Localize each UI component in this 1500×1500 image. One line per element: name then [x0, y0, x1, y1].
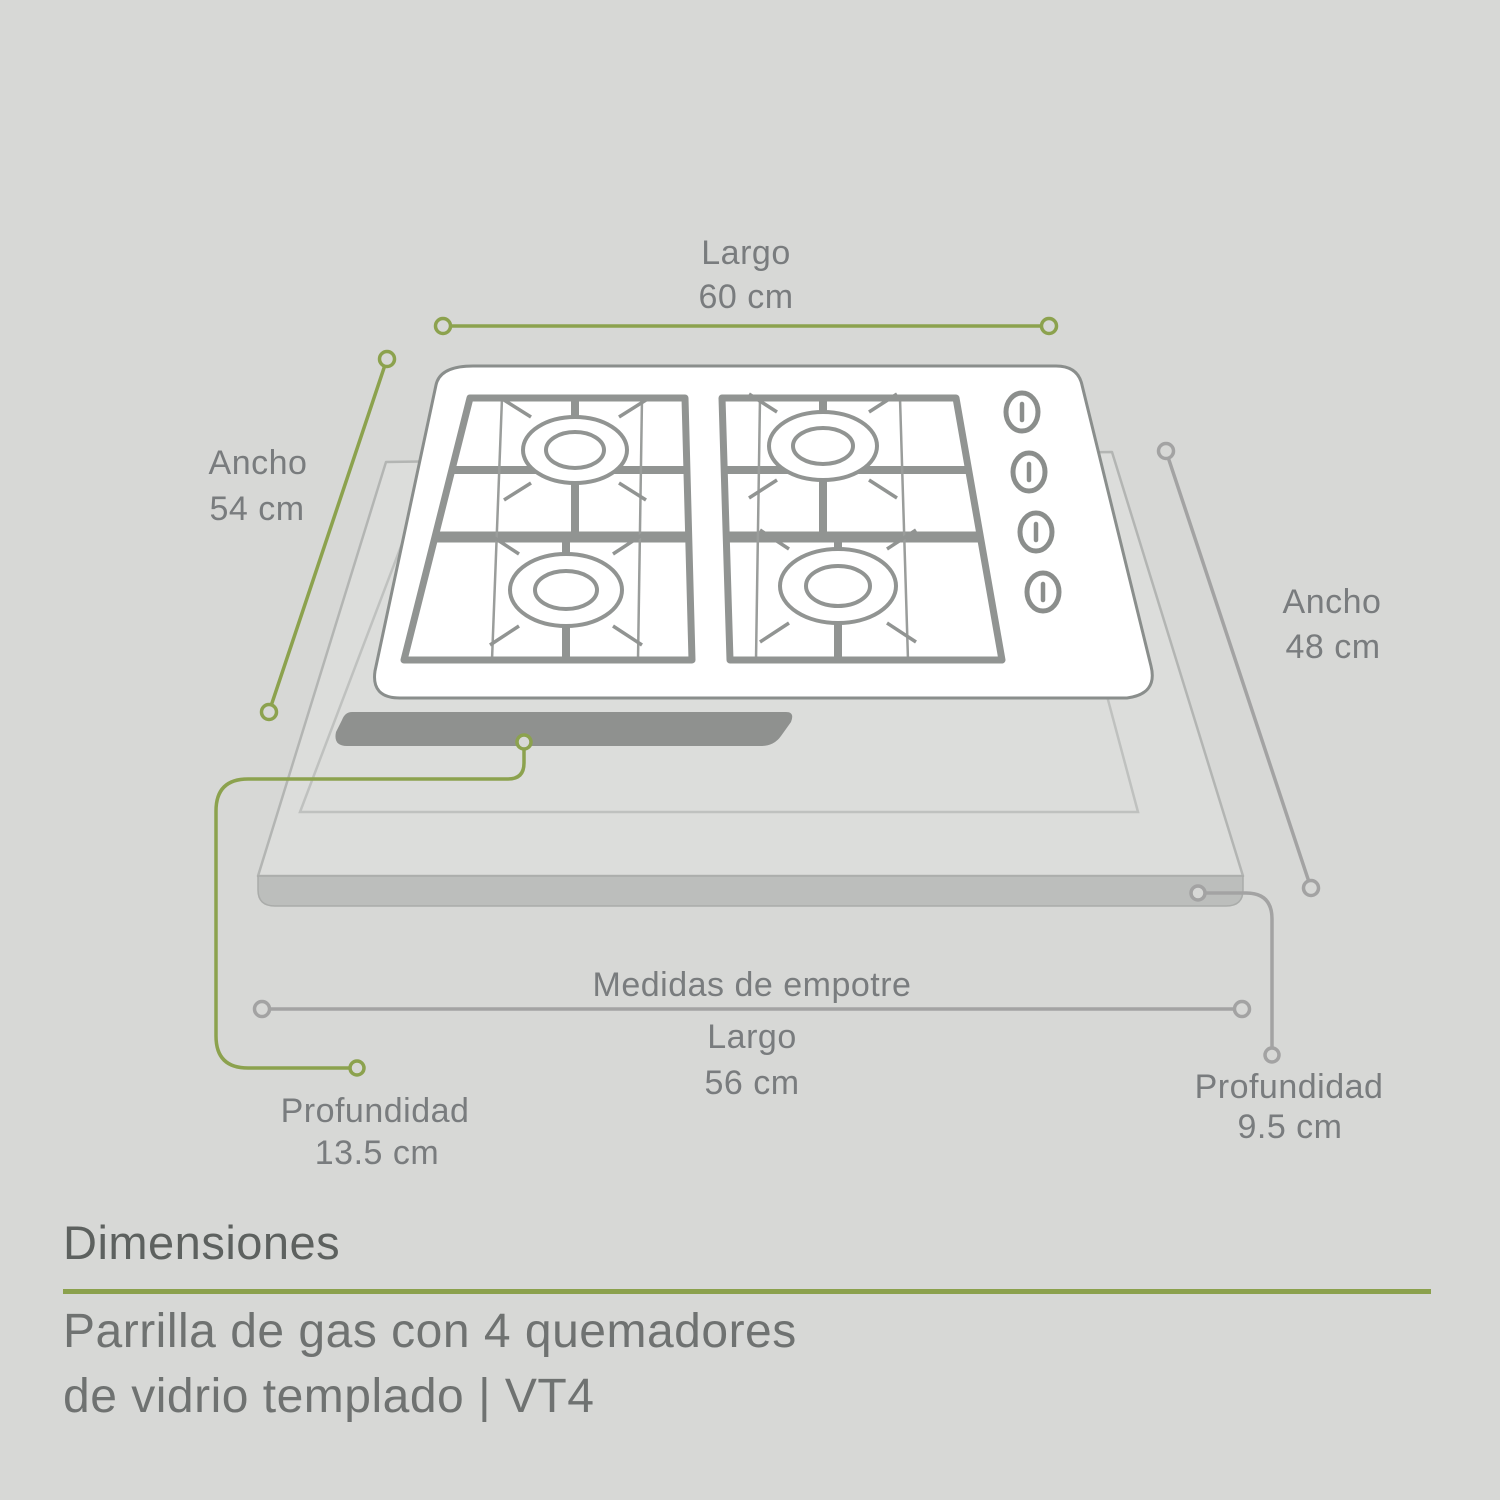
product-name-line2: de vidrio templado | VT4 — [63, 1370, 594, 1423]
left-width-label: Ancho — [209, 444, 308, 482]
dimension-endpoint-icon — [1265, 1048, 1279, 1062]
dimension-endpoint-icon — [1304, 881, 1319, 896]
knob-icon — [1006, 393, 1038, 431]
dimension-endpoint-icon — [517, 735, 531, 749]
dimension-endpoint-icon — [255, 1002, 270, 1017]
cutout-shadow — [335, 712, 792, 746]
dimension-endpoint-icon — [1235, 1002, 1250, 1017]
cutout-length-label: Largo — [707, 1018, 796, 1056]
product-name-line1: Parrilla de gas con 4 quemadores — [63, 1305, 797, 1358]
left-width-value: 54 cm — [209, 490, 304, 528]
dimension-endpoint-icon — [1159, 444, 1174, 459]
section-title: Dimensiones — [63, 1216, 340, 1269]
product-dimensions-infographic: Largo 60 cm Ancho 54 cm Ancho 48 cm Medi… — [0, 0, 1500, 1500]
right-width-label: Ancho — [1283, 583, 1382, 621]
dimension-endpoint-icon — [436, 319, 451, 334]
knob-icon — [1013, 453, 1045, 491]
dimension-depth-right: Profundidad 9.5 cm — [1191, 886, 1383, 1146]
depth-left-label: Profundidad — [281, 1092, 470, 1130]
burner-icon — [504, 400, 646, 500]
right-width-value: 48 cm — [1285, 628, 1380, 666]
dimension-cutout-length: Medidas de empotre Largo 56 cm — [255, 966, 1250, 1102]
dimension-endpoint-icon — [380, 352, 395, 367]
green-divider — [63, 1289, 1431, 1294]
depth-left-value: 13.5 cm — [315, 1134, 439, 1172]
dimension-endpoint-icon — [1191, 886, 1205, 900]
depth-right-value: 9.5 cm — [1237, 1108, 1342, 1146]
cutout-length-value: 56 cm — [704, 1064, 799, 1102]
cooktop-diagram-canvas: Largo 60 cm Ancho 54 cm Ancho 48 cm Medi… — [0, 0, 1500, 1500]
knob-icon — [1020, 513, 1052, 551]
dimension-endpoint-icon — [350, 1061, 364, 1075]
top-length-value: 60 cm — [698, 278, 793, 316]
dimension-endpoint-icon — [262, 705, 277, 720]
top-length-label: Largo — [701, 234, 790, 272]
cooktop — [375, 366, 1153, 698]
knob-icon — [1027, 573, 1059, 611]
dimension-endpoint-icon — [1042, 319, 1057, 334]
countertop-front-edge — [258, 876, 1243, 906]
cutout-title: Medidas de empotre — [593, 966, 912, 1004]
footer: Dimensiones Parrilla de gas con 4 quemad… — [63, 1216, 1431, 1423]
depth-right-label: Profundidad — [1195, 1068, 1384, 1106]
dimension-top-length: Largo 60 cm — [436, 234, 1057, 334]
